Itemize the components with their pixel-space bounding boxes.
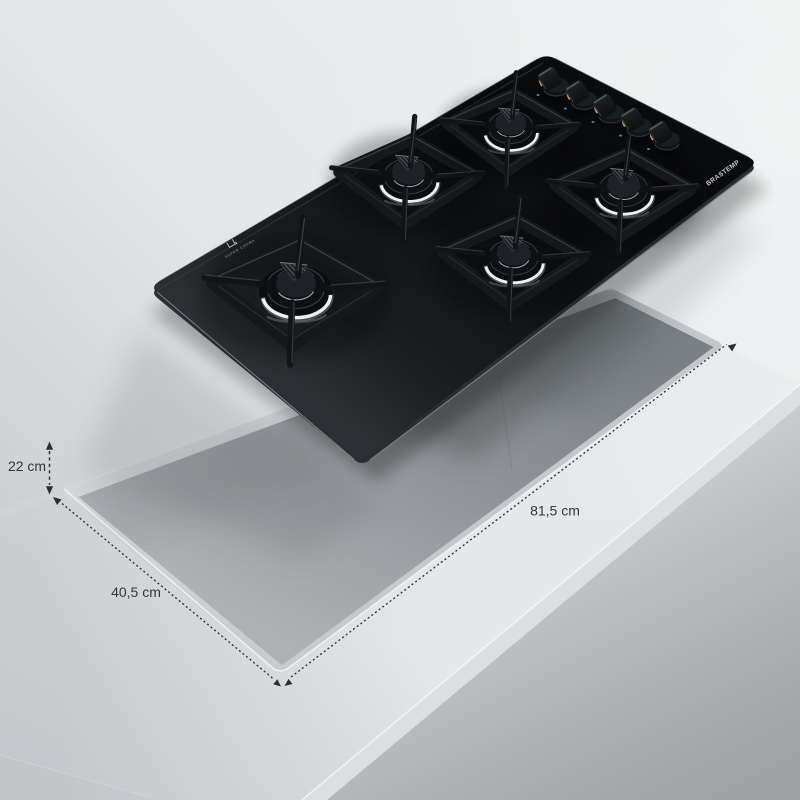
svg-text:40,5 cm: 40,5 cm	[111, 584, 161, 600]
svg-text:22 cm: 22 cm	[8, 458, 46, 474]
svg-text:81,5 cm: 81,5 cm	[530, 503, 580, 519]
